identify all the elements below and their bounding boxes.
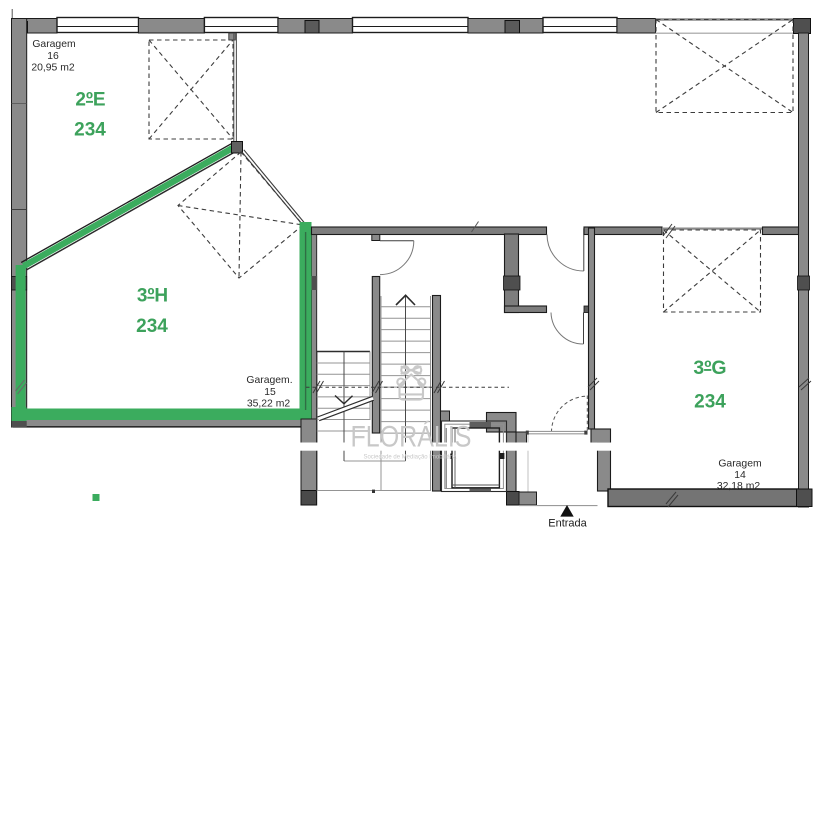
svg-text:Sociedade de Mediação Imobiliá: Sociedade de Mediação Imobiliária bbox=[364, 454, 457, 461]
svg-text:3ºH: 3ºH bbox=[137, 286, 168, 307]
svg-text:20,95 m2: 20,95 m2 bbox=[31, 62, 75, 73]
svg-text:Garagem: Garagem bbox=[32, 39, 75, 50]
svg-text:234: 234 bbox=[694, 392, 726, 413]
svg-text:234: 234 bbox=[74, 120, 106, 141]
svg-text:Garagem: Garagem bbox=[718, 458, 761, 469]
svg-text:Garagem.: Garagem. bbox=[246, 375, 292, 386]
svg-text:234: 234 bbox=[136, 316, 168, 337]
svg-text:32,18 m2: 32,18 m2 bbox=[717, 481, 761, 492]
svg-text:14: 14 bbox=[734, 470, 746, 481]
svg-text:35,22 m2: 35,22 m2 bbox=[247, 398, 291, 409]
svg-text:2ºE: 2ºE bbox=[75, 90, 105, 111]
svg-text:3ºG: 3ºG bbox=[693, 357, 726, 379]
svg-text:Entrada: Entrada bbox=[548, 518, 587, 530]
svg-text:FLORÁLIS: FLORÁLIS bbox=[351, 421, 472, 454]
svg-text:16: 16 bbox=[47, 51, 59, 62]
svg-text:15: 15 bbox=[264, 387, 276, 398]
